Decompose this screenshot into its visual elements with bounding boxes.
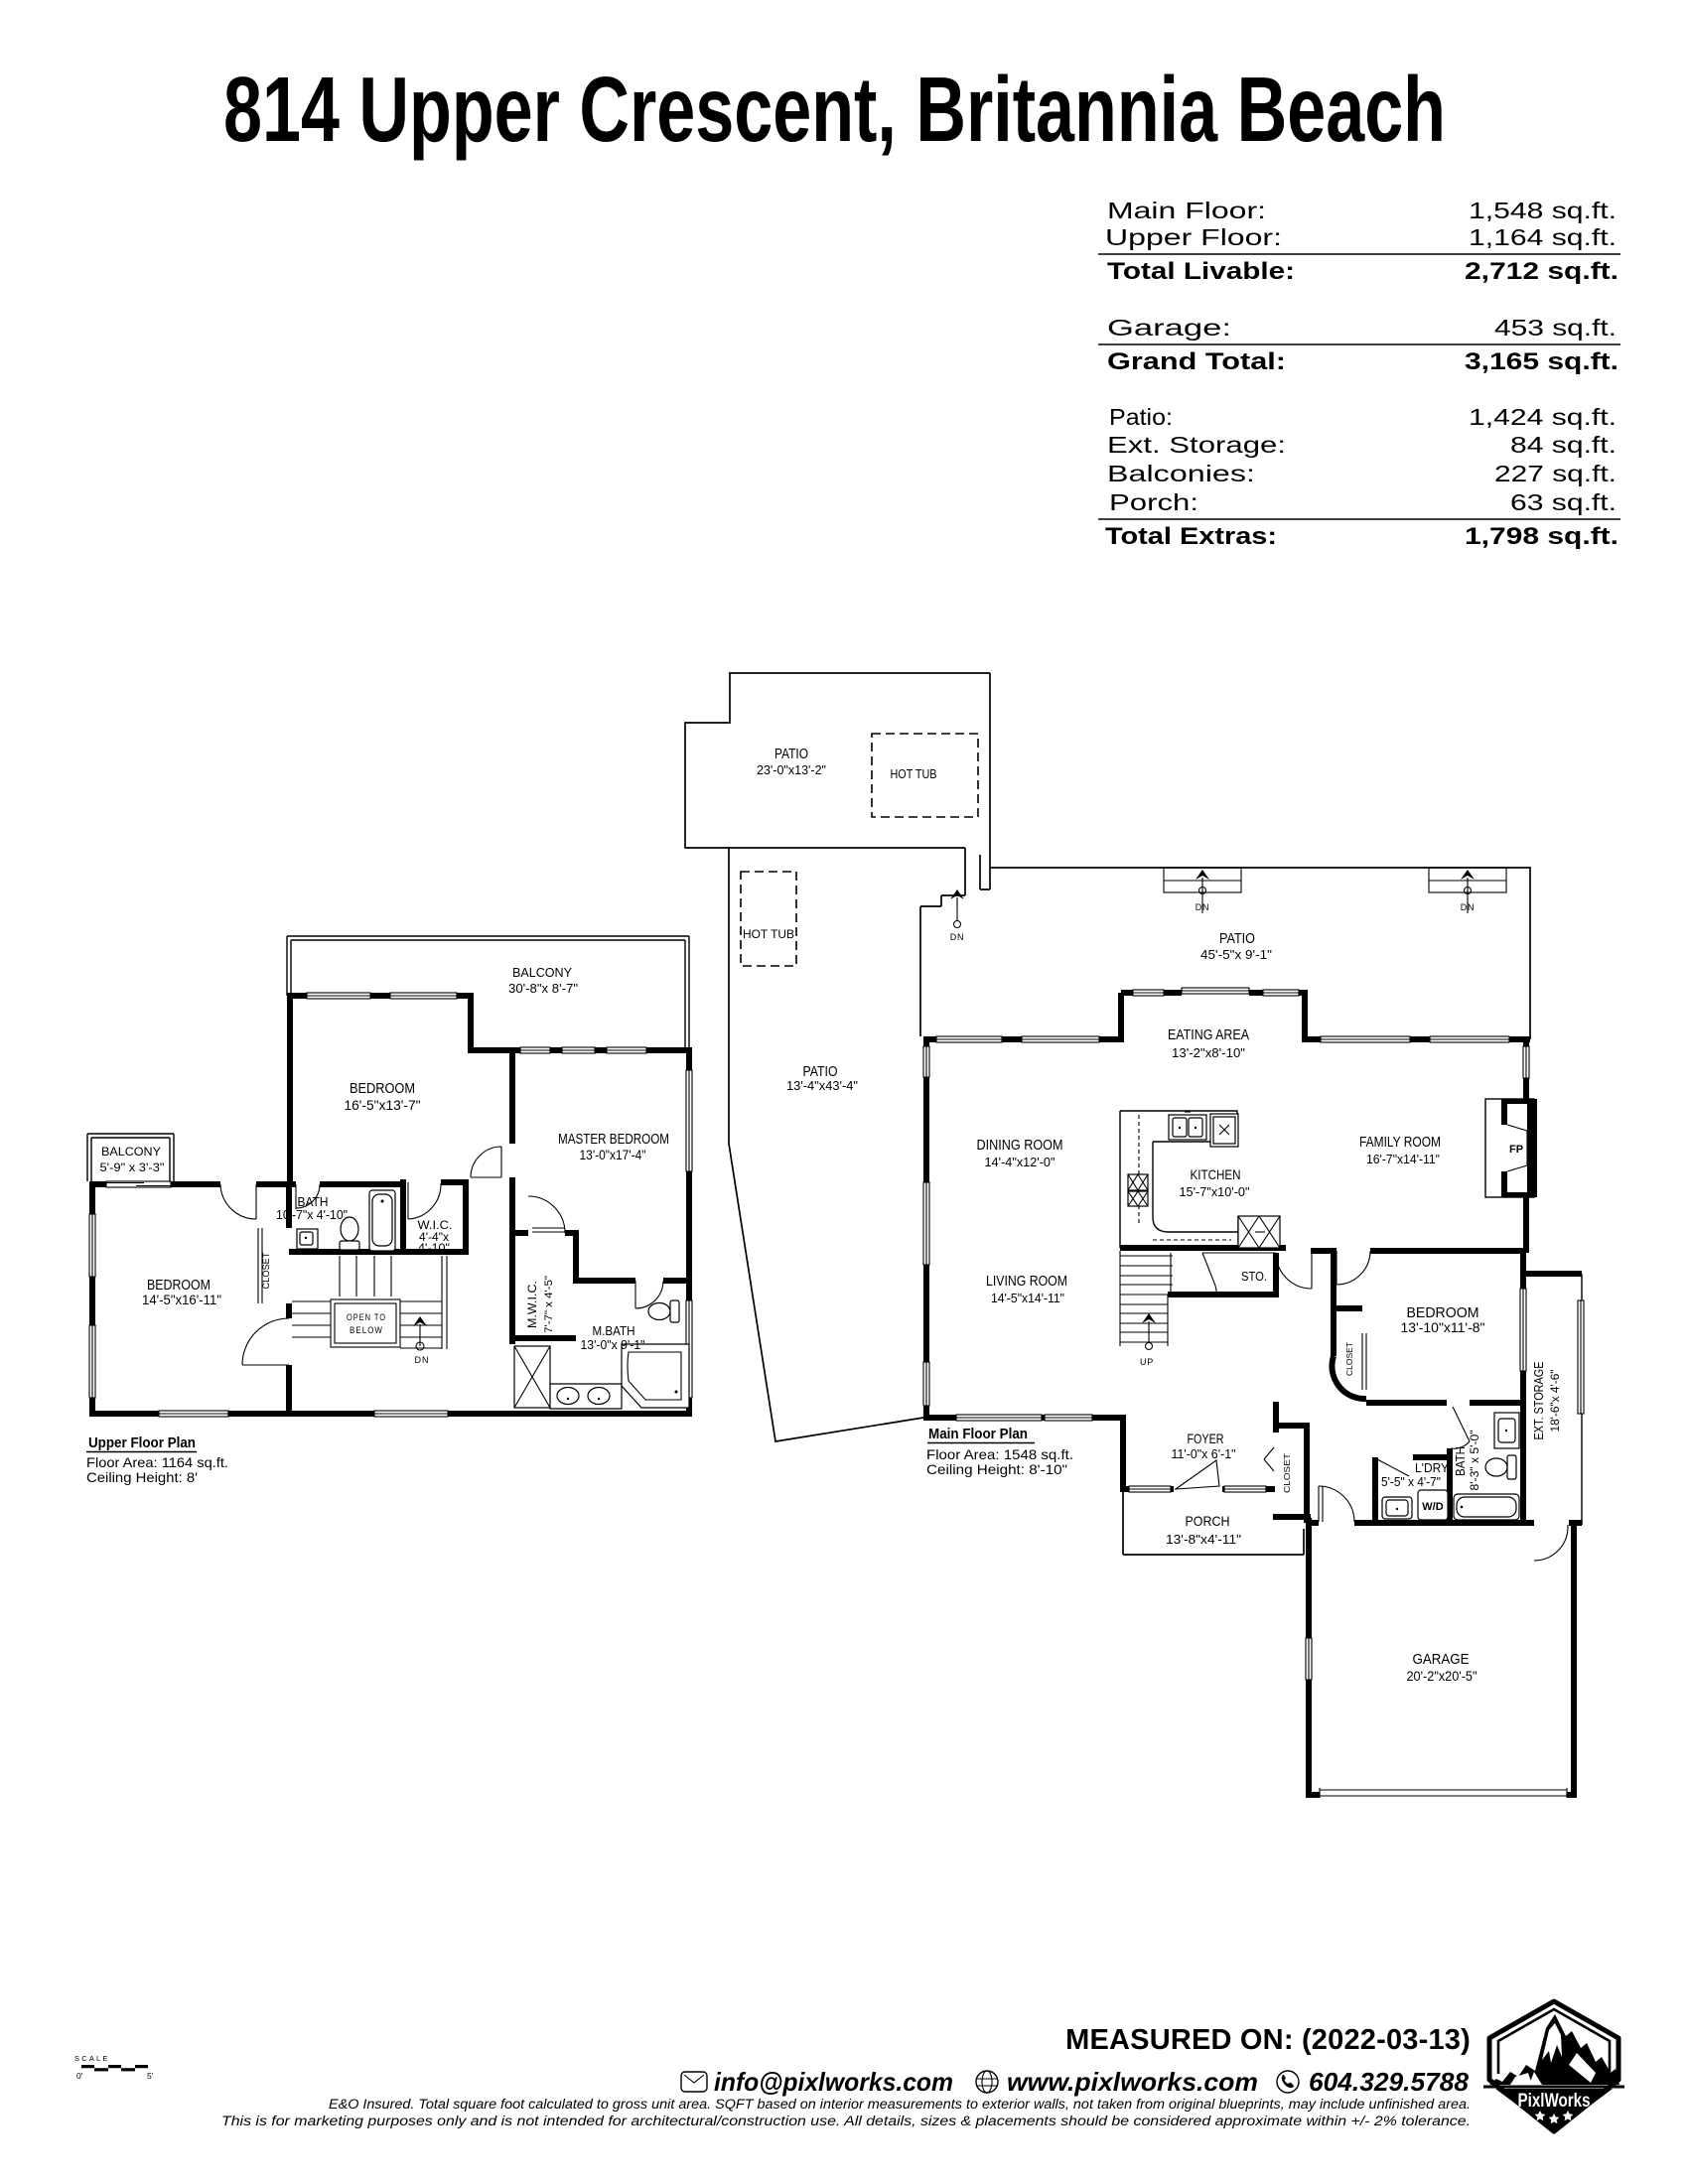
svg-text:453 sq.ft.: 453 sq.ft. [1494, 315, 1617, 341]
svg-text:W.I.C.: W.I.C. [418, 1220, 453, 1232]
svg-text:Total Livable:: Total Livable: [1107, 258, 1295, 285]
svg-text:KITCHEN: KITCHEN [1191, 1166, 1241, 1182]
svg-text:BEDROOM: BEDROOM [1407, 1305, 1479, 1321]
svg-text:227 sq.ft.: 227 sq.ft. [1494, 461, 1617, 486]
svg-text:BALCONY: BALCONY [512, 965, 572, 980]
svg-text:L'DRY: L'DRY [1415, 1461, 1450, 1475]
svg-text:13'-0"x 9'-1": 13'-0"x 9'-1" [581, 1338, 645, 1352]
svg-text:GARAGE: GARAGE [1413, 1652, 1470, 1668]
svg-text:PORCH: PORCH [1186, 1513, 1230, 1529]
svg-text:814 Upper Crescent, Britannia: 814 Upper Crescent, Britannia Beach [223, 58, 1446, 161]
svg-text:PATIO: PATIO [774, 747, 808, 762]
svg-text:DN: DN [950, 932, 965, 942]
svg-text:FOYER: FOYER [1188, 1431, 1224, 1446]
svg-text:Ceiling Height: 8'-10": Ceiling Height: 8'-10" [926, 1461, 1067, 1477]
svg-text:1,164 sq.ft.: 1,164 sq.ft. [1469, 224, 1617, 250]
svg-text:1,798 sq.ft.: 1,798 sq.ft. [1465, 523, 1618, 550]
svg-text:14'-4"x12'-0": 14'-4"x12'-0" [985, 1155, 1055, 1169]
svg-text:1,424 sq.ft.: 1,424 sq.ft. [1469, 404, 1617, 430]
svg-text:EXT. STORAGE: EXT. STORAGE [1532, 1362, 1546, 1440]
svg-text:20'-2"x20'-5": 20'-2"x20'-5" [1407, 1669, 1477, 1684]
svg-text:Patio:: Patio: [1109, 404, 1173, 430]
svg-text:15'-7"x10'-0": 15'-7"x10'-0" [1180, 1184, 1250, 1199]
svg-text:0': 0' [76, 2071, 83, 2081]
svg-text:M.W.I.C.: M.W.I.C. [525, 1281, 539, 1328]
svg-text:13'-0"x17'-4": 13'-0"x17'-4" [580, 1148, 646, 1162]
svg-text:FP: FP [1509, 1144, 1523, 1156]
svg-text:www.pixlworks.com: www.pixlworks.com [1007, 2067, 1258, 2097]
svg-text:SCALE: SCALE [74, 2054, 110, 2063]
svg-text:EATING AREA: EATING AREA [1168, 1027, 1249, 1043]
svg-text:14'-5"x16'-11": 14'-5"x16'-11" [142, 1293, 221, 1307]
svg-text:13'-4"x43'-4": 13'-4"x43'-4" [786, 1078, 858, 1093]
svg-text:BELOW: BELOW [350, 1325, 383, 1335]
svg-text:5'-5" x 4'-7": 5'-5" x 4'-7" [1381, 1475, 1441, 1489]
svg-text:CLOSET: CLOSET [1282, 1453, 1292, 1493]
svg-text:Main Floor:: Main Floor: [1107, 198, 1266, 223]
svg-text:16'-5"x13'-7": 16'-5"x13'-7" [345, 1098, 421, 1113]
svg-text:23'-0"x13'-2": 23'-0"x13'-2" [757, 762, 826, 777]
svg-text:14'-5"x14'-11": 14'-5"x14'-11" [991, 1291, 1064, 1305]
svg-text:BATH: BATH [1454, 1446, 1468, 1476]
svg-text:PATIO: PATIO [1219, 931, 1255, 947]
svg-text:BEDROOM: BEDROOM [147, 1278, 211, 1294]
svg-text:E&O Insured. Total square foo: E&O Insured. Total square foot calculate… [329, 2097, 1471, 2112]
svg-text:13'-2"x8'-10": 13'-2"x8'-10" [1172, 1045, 1245, 1060]
svg-text:8'-3" x 5'-0": 8'-3" x 5'-0" [1468, 1431, 1481, 1491]
svg-text:Ceiling Height: 8': Ceiling Height: 8' [86, 1469, 198, 1485]
svg-text:5'-9" x 3'-3": 5'-9" x 3'-3" [100, 1162, 165, 1174]
svg-text:DINING ROOM: DINING ROOM [977, 1138, 1063, 1154]
svg-text:Grand Total:: Grand Total: [1107, 348, 1286, 375]
svg-text:Porch:: Porch: [1109, 489, 1198, 515]
svg-text:Floor Area: 1164 sq.ft.: Floor Area: 1164 sq.ft. [86, 1454, 228, 1470]
svg-text:Main Floor Plan: Main Floor Plan [928, 1426, 1028, 1442]
svg-text:PixlWorks: PixlWorks [1518, 2091, 1591, 2112]
svg-text:Ext. Storage:: Ext. Storage: [1107, 432, 1286, 458]
svg-text:MEASURED ON: (2022-03-13): MEASURED ON: (2022-03-13) [1065, 2024, 1471, 2056]
svg-text:Garage:: Garage: [1107, 315, 1231, 341]
svg-text:4'-10": 4'-10" [418, 1243, 450, 1255]
svg-text:CLOSET: CLOSET [1344, 1342, 1354, 1376]
svg-text:Floor Area: 1548 sq.ft.: Floor Area: 1548 sq.ft. [926, 1446, 1073, 1462]
svg-text:11'-0"x 6'-1": 11'-0"x 6'-1" [1172, 1446, 1236, 1461]
svg-text:16'-7"x14'-11": 16'-7"x14'-11" [1366, 1152, 1440, 1166]
svg-text:Upper Floor:: Upper Floor: [1105, 224, 1282, 250]
svg-text:FAMILY ROOM: FAMILY ROOM [1359, 1135, 1441, 1151]
svg-text:13'-8"x4'-11": 13'-8"x4'-11" [1166, 1532, 1241, 1547]
svg-text:BATH: BATH [298, 1195, 329, 1209]
svg-text:MASTER BEDROOM: MASTER BEDROOM [558, 1132, 669, 1148]
svg-text:LIVING ROOM: LIVING ROOM [986, 1274, 1067, 1290]
svg-text:13'-10"x11'-8": 13'-10"x11'-8" [1401, 1320, 1485, 1335]
svg-text:STO.: STO. [1241, 1270, 1267, 1284]
svg-text:604.329.5788: 604.329.5788 [1309, 2067, 1470, 2097]
svg-text:5': 5' [147, 2071, 154, 2081]
svg-text:3,165 sq.ft.: 3,165 sq.ft. [1465, 348, 1618, 375]
svg-text:DN: DN [1461, 902, 1476, 912]
svg-text:BALCONY: BALCONY [101, 1147, 161, 1159]
svg-text:M.BATH: M.BATH [593, 1323, 635, 1338]
svg-text:Total Extras:: Total Extras: [1105, 523, 1277, 550]
svg-text:1,548 sq.ft.: 1,548 sq.ft. [1469, 198, 1617, 223]
svg-text:84 sq.ft.: 84 sq.ft. [1510, 432, 1617, 458]
svg-text:W/D: W/D [1422, 1501, 1443, 1513]
svg-text:info@pixlworks.com: info@pixlworks.com [714, 2067, 953, 2097]
svg-text:63 sq.ft.: 63 sq.ft. [1510, 489, 1617, 515]
svg-text:This is for marketing purposes: This is for marketing purposes only and … [221, 2114, 1471, 2128]
svg-text:CLOSET: CLOSET [261, 1252, 271, 1290]
svg-text:HOT TUB: HOT TUB [743, 927, 794, 941]
svg-text:45'-5"x 9'-1": 45'-5"x 9'-1" [1200, 947, 1272, 962]
svg-text:BEDROOM: BEDROOM [350, 1081, 415, 1097]
svg-text:Balconies:: Balconies: [1107, 461, 1255, 486]
svg-text:OPEN TO: OPEN TO [347, 1312, 386, 1322]
svg-text:7'-7" x 4'-5": 7'-7" x 4'-5" [543, 1276, 555, 1333]
svg-text:2,712 sq.ft.: 2,712 sq.ft. [1465, 258, 1618, 285]
svg-text:10'-7"x 4'-10": 10'-7"x 4'-10" [276, 1208, 348, 1222]
svg-text:DN: DN [415, 1355, 430, 1365]
svg-text:DN: DN [1196, 902, 1210, 912]
svg-text:HOT TUB: HOT TUB [891, 766, 937, 781]
svg-text:Upper Floor Plan: Upper Floor Plan [88, 1434, 196, 1451]
svg-text:18'-6"x 4'-6": 18'-6"x 4'-6" [1548, 1370, 1562, 1433]
svg-text:UP: UP [1140, 1357, 1154, 1367]
svg-text:30'-8"x 8'-7": 30'-8"x 8'-7" [508, 981, 578, 996]
